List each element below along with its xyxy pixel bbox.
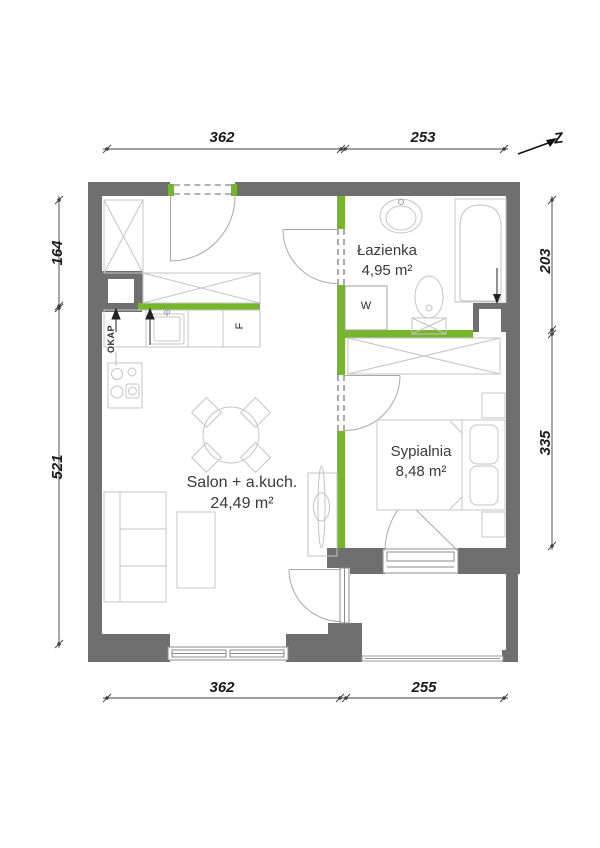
salon-balcony-door	[289, 568, 349, 623]
coffee-table	[177, 512, 215, 588]
room-label-livingroom: Salon + a.kuch. 24,49 m²	[164, 473, 320, 515]
wall-top-right	[235, 182, 520, 196]
wall-left	[88, 182, 102, 662]
hall-wardrobe	[104, 200, 143, 273]
floor-plan: Łazienka 4,95 m² Sypialnia 8,48 m² Salon…	[0, 0, 600, 848]
entrance-opening-dash	[174, 193, 231, 195]
partition-bath-bottom	[345, 330, 473, 338]
bathroom-area: 4,95 m²	[330, 261, 444, 281]
dim-bottom-1: 362	[187, 679, 257, 696]
washer-label: W	[356, 300, 376, 312]
partition-mid	[337, 285, 345, 375]
bedroom-opening-dash	[343, 375, 345, 431]
dim-top-1: 362	[187, 129, 257, 146]
bathroom-door	[283, 230, 337, 284]
balcony-corner-block	[502, 650, 518, 662]
dim-left-2: 521	[49, 437, 65, 497]
wall-bottom-mid	[286, 648, 362, 662]
dim-left-1: 164	[49, 223, 65, 283]
bedroom-area: 8,48 m²	[364, 462, 478, 482]
dim-right-1: 203	[537, 231, 553, 291]
bathroom-sink	[380, 199, 422, 233]
dimension-lines	[55, 145, 556, 702]
bedroom-door	[345, 376, 400, 431]
room-label-bathroom: Łazienka 4,95 m²	[330, 241, 444, 280]
entrance-jamb-right	[231, 184, 237, 196]
dim-bottom-2: 255	[389, 679, 459, 696]
bedroom-name: Sypialnia	[364, 442, 478, 462]
divider-end-block	[327, 548, 350, 568]
nightstand-bottom	[482, 512, 505, 537]
fridge-label: F	[234, 316, 246, 336]
partition-bottom	[337, 431, 345, 548]
cooktop	[108, 363, 142, 408]
wall-right	[506, 182, 520, 574]
dining-table	[203, 407, 259, 463]
livingroom-name: Salon + a.kuch.	[164, 473, 320, 494]
entrance-opening-dash	[174, 184, 231, 186]
kitchen-upper-cabinets	[143, 273, 260, 303]
entrance-door	[171, 196, 236, 261]
wall-bottom-left	[88, 648, 170, 662]
toilet	[412, 276, 446, 334]
partition-bath-top	[337, 196, 345, 229]
balcony-corner-stub	[328, 623, 362, 648]
livingroom-area: 24,49 m²	[164, 494, 320, 515]
bathroom-shaft-void	[479, 309, 501, 332]
bathtub	[455, 199, 506, 304]
dining-chairs	[192, 398, 271, 473]
nightstand-top	[482, 393, 505, 418]
bedroom-wall-bottom-left	[350, 548, 385, 574]
pilaster-left	[102, 634, 170, 648]
bathroom-name: Łazienka	[330, 241, 444, 261]
north-label: Z	[553, 129, 564, 147]
dim-right-2: 335	[537, 413, 553, 473]
kitchen-shaft-ledge	[102, 303, 142, 312]
kitchen-shaft-void	[108, 279, 134, 305]
hood-label: OKAP	[106, 319, 118, 359]
bedroom-wardrobe	[348, 338, 500, 374]
balcony-railing	[362, 656, 503, 661]
room-label-bedroom: Sypialnia 8,48 m²	[364, 442, 478, 481]
bedroom-balcony-window	[383, 500, 458, 573]
kitchen-arrow	[146, 309, 154, 345]
north-arrow	[518, 138, 557, 154]
kitchen-counter-edge	[138, 303, 260, 310]
salon-window	[168, 647, 288, 660]
kitchen-sink	[150, 308, 184, 344]
bedroom-opening-dash	[337, 375, 339, 431]
balcony-wall-right	[506, 574, 518, 662]
dim-top-2: 253	[388, 129, 458, 146]
sofa	[104, 492, 166, 602]
